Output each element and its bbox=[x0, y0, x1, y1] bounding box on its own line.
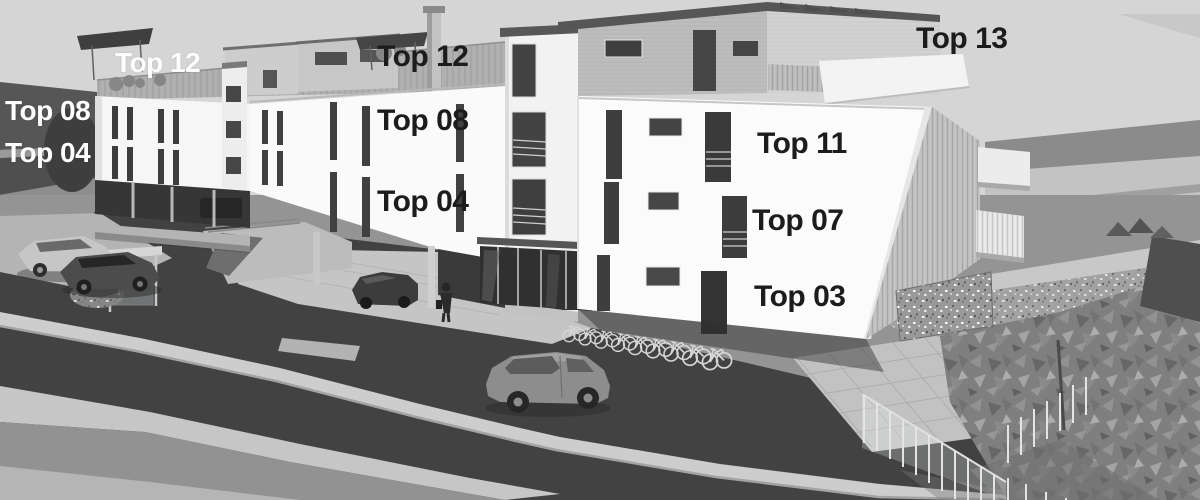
building-rendering: Top 12 Top 08 Top 04 Top 12 Top 08 Top 0… bbox=[0, 0, 1200, 500]
parked-car-silhouette bbox=[200, 198, 242, 218]
rendering-scene bbox=[0, 0, 1200, 500]
column bbox=[313, 232, 320, 284]
street-car bbox=[486, 352, 610, 417]
column bbox=[428, 246, 435, 308]
carport-car bbox=[352, 272, 418, 309]
bag bbox=[436, 300, 442, 309]
right-penthouse bbox=[558, 2, 969, 104]
east-balcony bbox=[978, 147, 1030, 186]
penthouse-railing bbox=[768, 64, 828, 92]
bush bbox=[44, 108, 100, 192]
